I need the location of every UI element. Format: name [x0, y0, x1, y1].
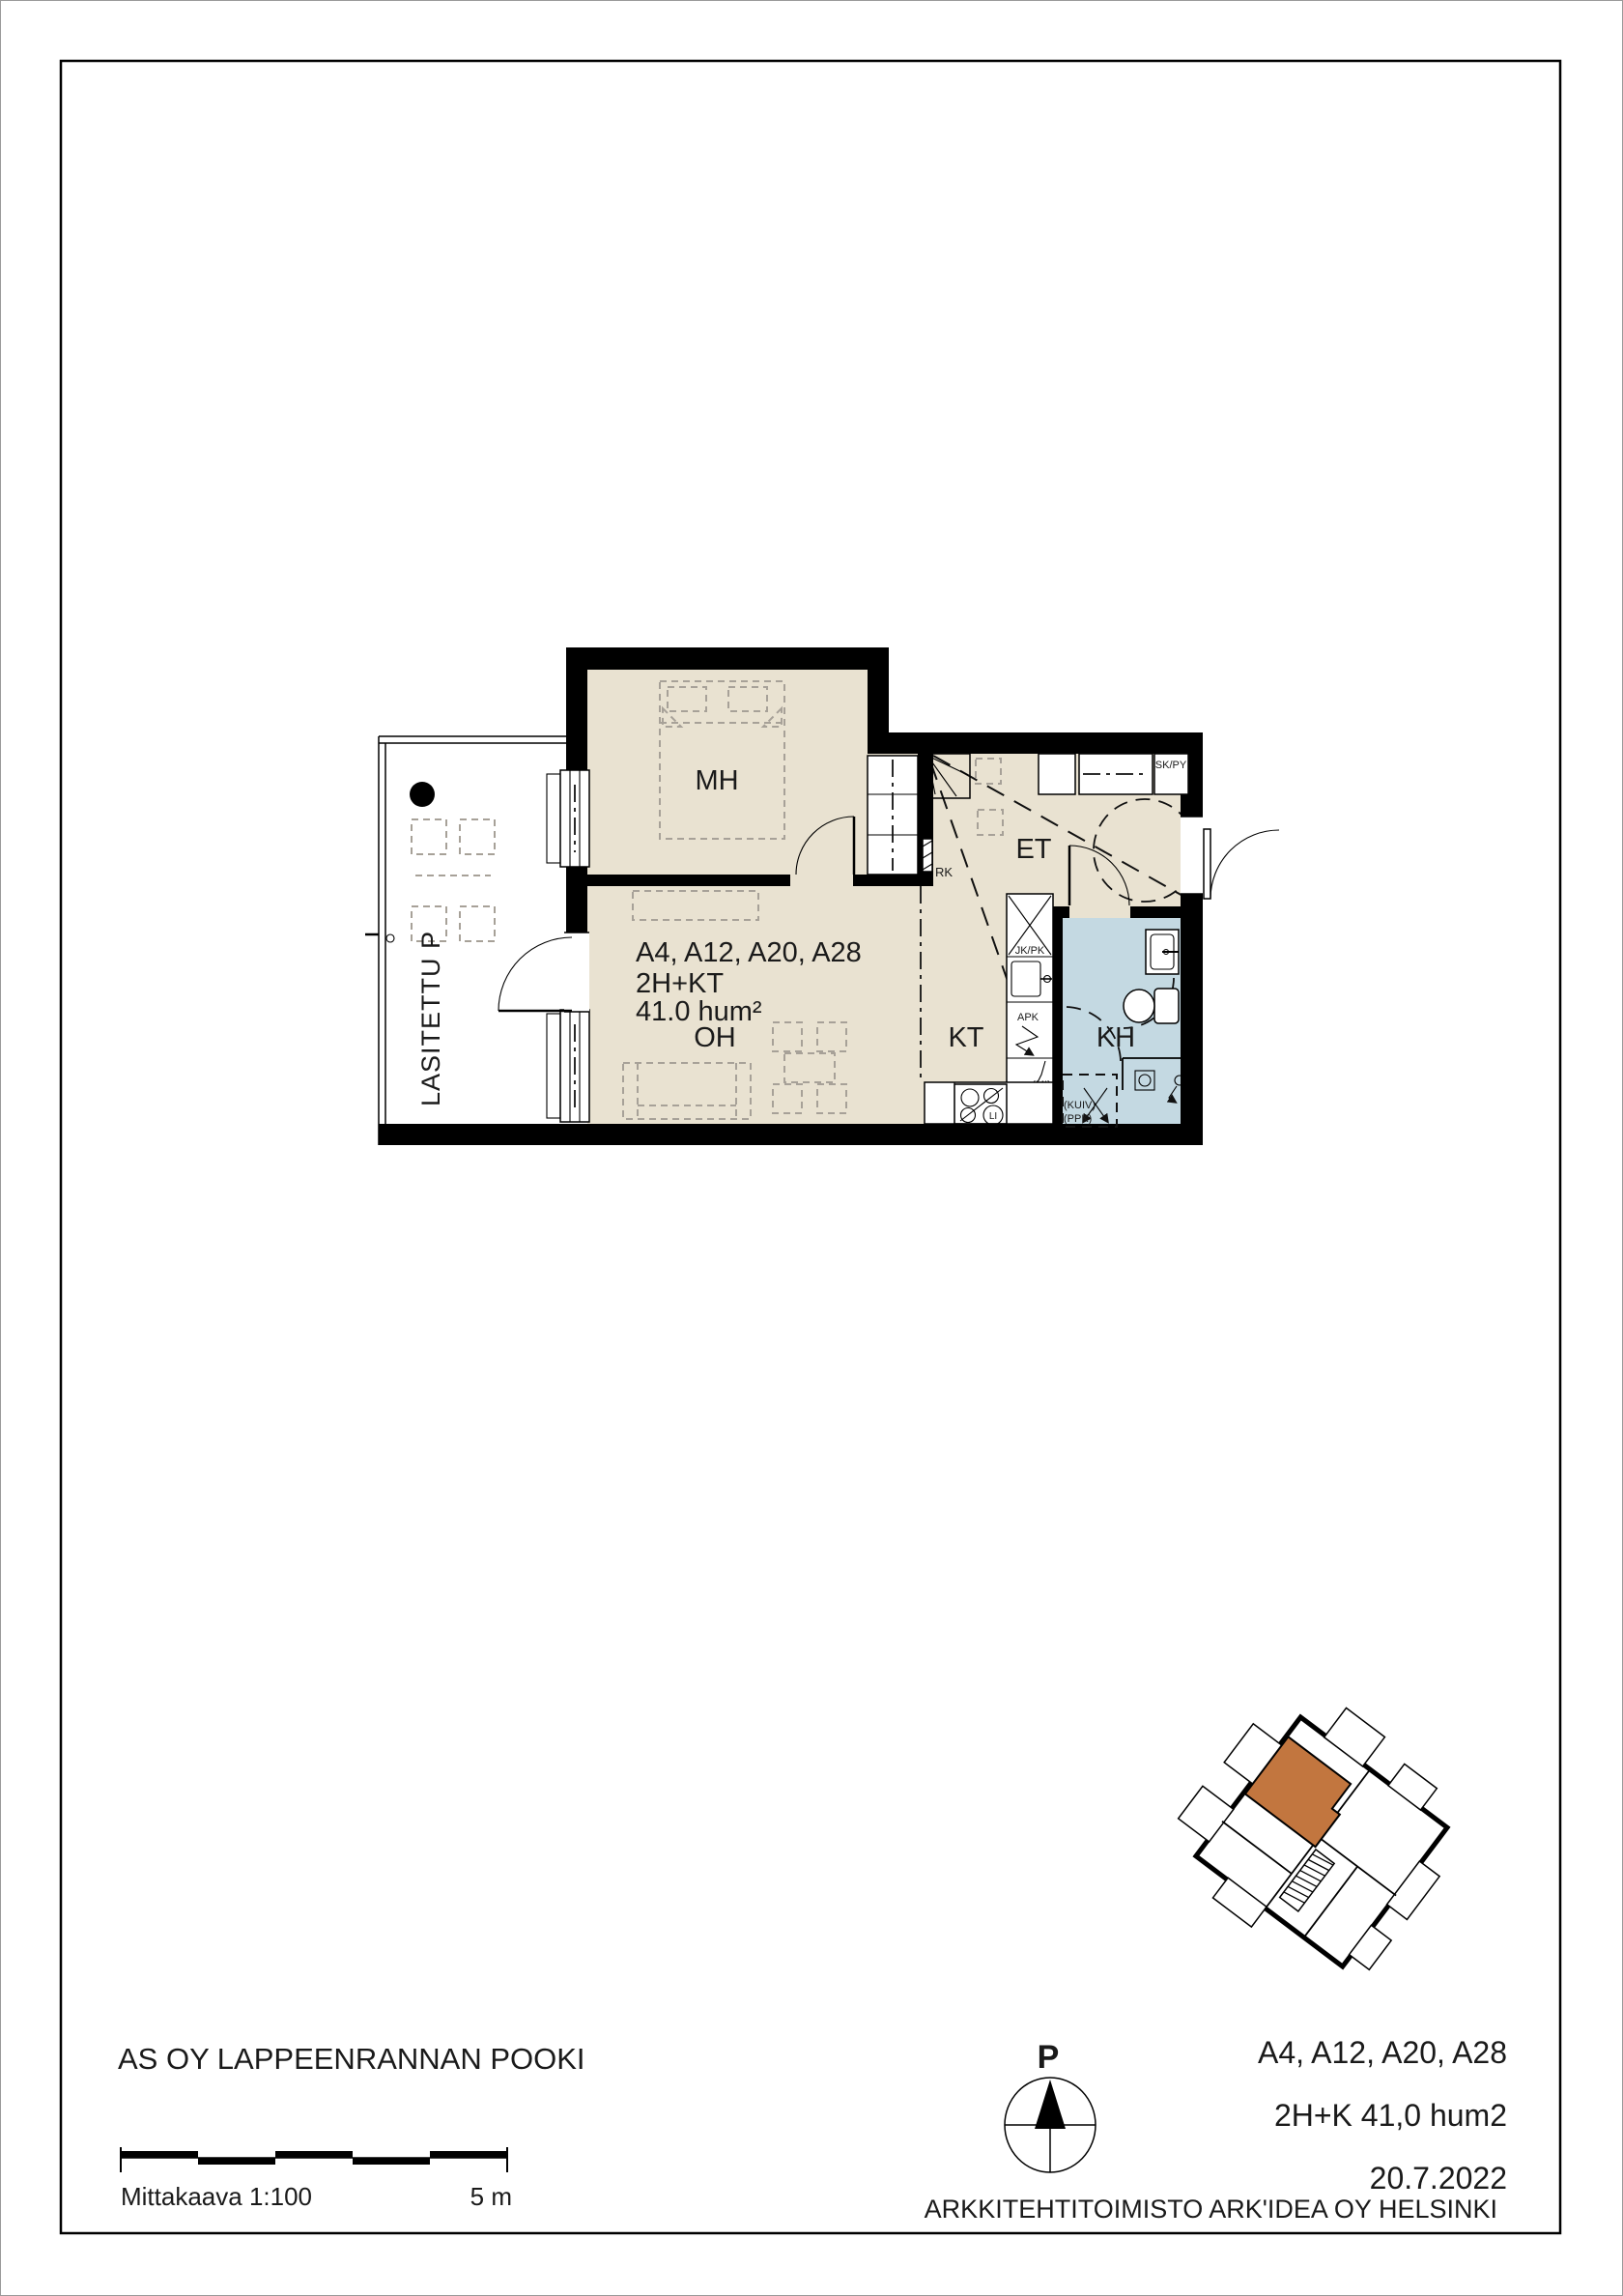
title-block-date: 20.7.2022 [1370, 2161, 1507, 2196]
key-plan [1153, 1667, 1487, 1998]
apartment-label-line3: 41.0 hum² [636, 996, 762, 1027]
skpy-label: SK/PY [1155, 760, 1187, 771]
balcony-label: LASITETTU P [416, 931, 445, 1106]
apartment-label-line1: A4, A12, A20, A28 [636, 937, 862, 968]
li-label: LI [989, 1111, 997, 1122]
title-block: A4, A12, A20, A28 2H+K 41,0 hum2 20.7.20… [925, 2035, 1507, 2224]
north-label: P [1038, 2039, 1060, 2076]
apartment-label-line2: 2H+KT [636, 968, 724, 999]
bathroom-sink [1146, 930, 1179, 974]
project-title: AS OY LAPPEENRANNAN POOKI [118, 2042, 585, 2076]
apartment-plan: LASITETTU P [365, 647, 1279, 1145]
title-block-apartments: A4, A12, A20, A28 [1258, 2035, 1507, 2070]
room-label-et: ET [1015, 834, 1051, 865]
footer: AS OY LAPPEENRANNAN POOKI Mittakaava 1:1… [118, 2035, 1507, 2224]
title-block-type-area: 2H+K 41,0 hum2 [1274, 2098, 1507, 2133]
floor-plan-drawing: LASITETTU P [0, 0, 1623, 2296]
north-arrow-pointer [1035, 2080, 1066, 2129]
room-label-kt: KT [948, 1022, 983, 1053]
drawing-sheet: LASITETTU P [0, 0, 1623, 2296]
scale-label: Mittakaava 1:100 [121, 2182, 312, 2211]
kuiv-label: (KUIV) [1064, 1100, 1096, 1111]
room-label-kh: KH [1096, 1022, 1135, 1053]
balcony-drain [410, 782, 435, 807]
apk-label: APK [1017, 1012, 1039, 1023]
scale-bar [121, 2147, 507, 2172]
room-label-mh: MH [695, 765, 738, 796]
scale-length-label: 5 m [470, 2182, 512, 2211]
ppk-label: (PPK) [1064, 1113, 1092, 1125]
jkpk-label: JK/PK [1015, 945, 1045, 957]
entry-door [1181, 817, 1279, 899]
north-arrow: P [1005, 2039, 1096, 2172]
title-block-architect: ARKKITEHTITOIMISTO ARK'IDEA OY HELSINKI [925, 2195, 1497, 2224]
rk-label: RK [935, 865, 953, 879]
et-closets: SK/PY [1039, 754, 1188, 794]
mh-wardrobe [868, 756, 918, 875]
